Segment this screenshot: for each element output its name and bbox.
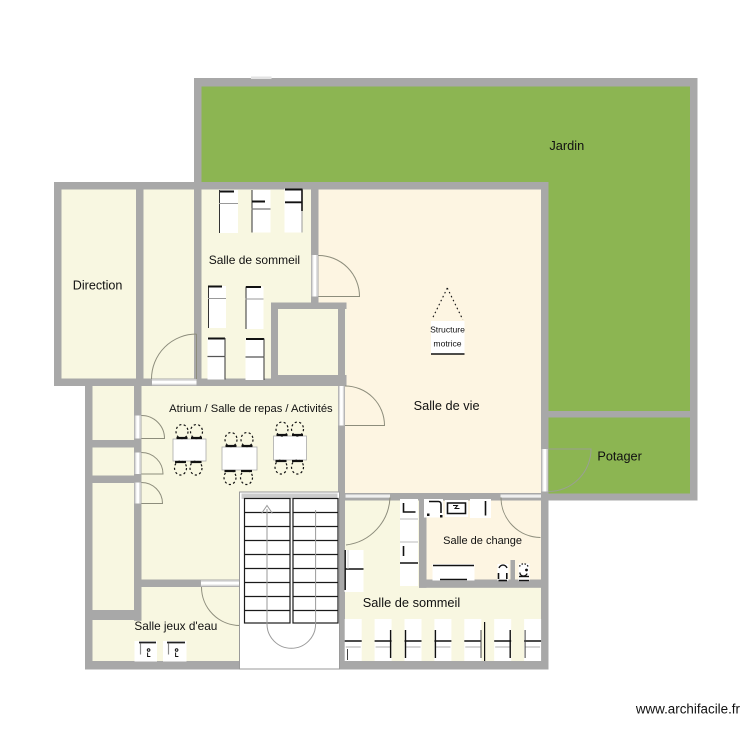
svg-text:Salle jeux d'eau: Salle jeux d'eau — [134, 619, 217, 633]
svg-text:Atrium / Salle de repas / Acti: Atrium / Salle de repas / Activités — [169, 403, 333, 415]
svg-text:Salle de vie: Salle de vie — [414, 398, 480, 413]
svg-text:Salle de sommeil: Salle de sommeil — [209, 253, 300, 267]
svg-text:Potager: Potager — [597, 450, 642, 464]
svg-text:Direction: Direction — [73, 278, 123, 292]
svg-text:Jardin: Jardin — [549, 138, 584, 153]
svg-text:Structure: Structure — [430, 325, 465, 335]
svg-text:www.archifacile.fr: www.archifacile.fr — [635, 702, 741, 717]
svg-text:Salle de change: Salle de change — [443, 535, 522, 547]
svg-text:motrice: motrice — [433, 339, 461, 349]
svg-text:Salle de sommeil: Salle de sommeil — [363, 595, 460, 610]
